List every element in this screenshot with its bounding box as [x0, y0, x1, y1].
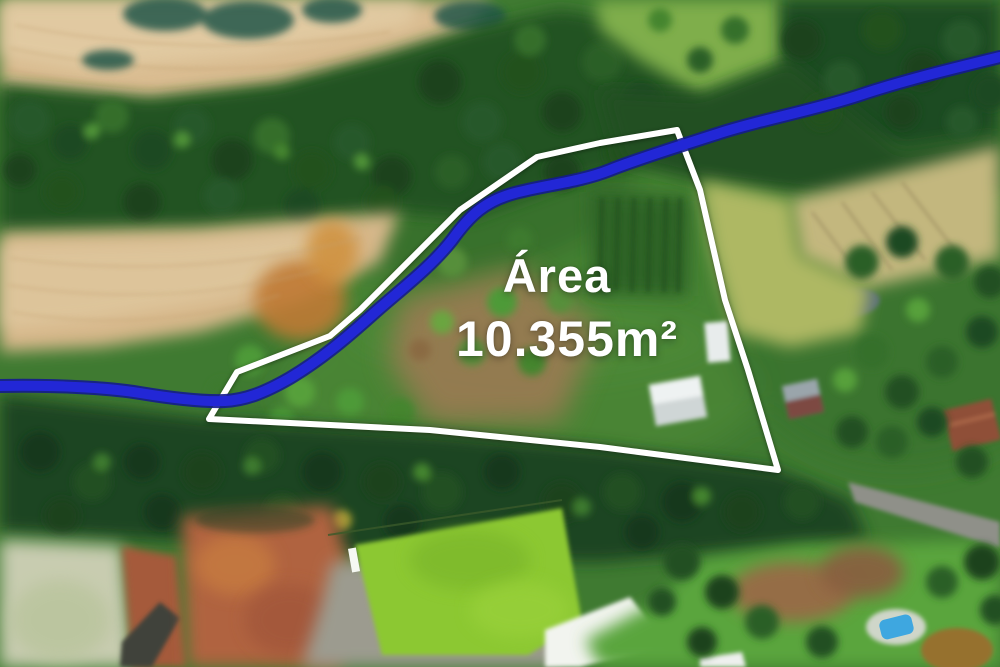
shed-metal-roof [649, 376, 708, 426]
shed-small-white [704, 321, 730, 363]
pool [866, 609, 926, 645]
aerial-photo-listing: Área 10.355m² [0, 0, 1000, 667]
bottom-left-cleared-field [0, 540, 186, 667]
aerial-photo [0, 0, 1000, 667]
